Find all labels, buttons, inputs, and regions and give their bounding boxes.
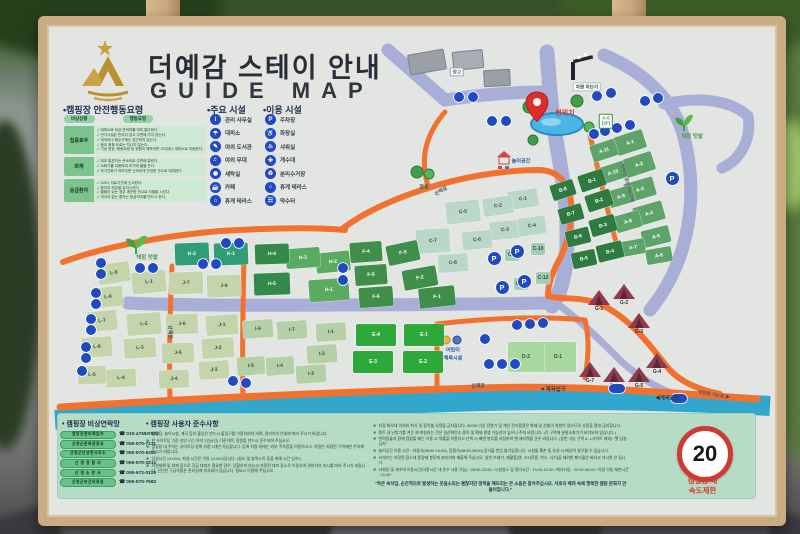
map-label: 산책로: [167, 325, 174, 339]
site-E-2: E-2: [403, 351, 443, 373]
rule-item: ✱캠핑장, 놀이시설, 계곡 등의 출입은 반드시 출입구를 이용하여야 하며,…: [146, 431, 368, 436]
contact-phone: ☎ 055-970-7582: [119, 480, 156, 485]
facility-marker: [221, 238, 231, 248]
facility-marker: [81, 353, 91, 363]
site-B-2: B-2: [584, 188, 614, 212]
contact-name-pill: 산청군보건의료원: [60, 478, 116, 487]
site-B-4: B-4: [595, 240, 624, 263]
site-I-6: I-6: [242, 319, 273, 339]
contact-name-pill: 캠핑장관리책임자: [60, 431, 116, 440]
rule-text: 반려동물과 함께 캠핑할 때는 이용 시 목줄을 착용하고 산책 시 배변 봉투…: [379, 436, 629, 446]
rule-text: 텐트 내 난방기를 켜둔 채 취침하는 것은 일산화탄소 중독 및 화재 발생 …: [379, 430, 617, 435]
site-C-8: C-8: [437, 253, 468, 273]
site-J-8: J-8: [207, 274, 242, 297]
map-label: 체험 텃밭: [681, 132, 703, 140]
facility-marker: [135, 263, 145, 273]
rule-text: 쓰레기는 지정된 장소에 종량제 봉투에 분리하여 배출해 주십시오. 일반 쓰…: [379, 455, 629, 465]
glamping-tent-G-2: G-2: [611, 284, 637, 306]
facility-marker: [241, 378, 251, 388]
site-A-6: A-6: [645, 245, 673, 264]
tent-icon: [579, 362, 601, 377]
site-H-3: H-3: [285, 247, 320, 269]
site-H-5: H-5: [254, 272, 291, 295]
photo-scene: 더예감 스테이 안내 GUIDE MAP •캠핑장 안전행동요령 비상상황 행동…: [0, 0, 800, 534]
rule-text: 샤워장 및 개수대 이용시간(이용시간 내 온수 사용 가능) : 08:00-…: [379, 467, 629, 477]
facility-marker: [501, 116, 511, 126]
glamping-tent-G-3: G-3: [626, 313, 652, 335]
site-I-2: I-2: [306, 344, 337, 364]
site-F-4: F-4: [349, 241, 382, 263]
site-A-8: A-8: [613, 209, 643, 233]
facility-marker: [468, 92, 478, 102]
speed-limit-sign: 20: [677, 426, 733, 482]
site-C-6: C-6: [461, 229, 493, 250]
site-J-1: J-1: [205, 314, 238, 336]
facility-marker: [606, 88, 616, 98]
site-B-3: B-3: [588, 213, 618, 237]
map-box-label: 창고: [450, 67, 464, 76]
map-label: 어린이: [446, 347, 460, 354]
facility-marker: [512, 320, 522, 330]
site-I-3: I-3: [295, 364, 326, 384]
parking-marker: P: [511, 245, 524, 258]
quiet-notice: “작은 속삭임, 순간적으로 발생하는 웃음소리는 괜찮지만 정적을 깨뜨리는 …: [373, 481, 628, 492]
rule-bullet: ✱: [146, 463, 150, 473]
contact-name-pill: 산 청 경 찰 서: [60, 459, 116, 468]
rule-item: ✱캠핑장 내 주차는 사이트당 등록 차량 1대만 가능합니다. 등록 차량 외…: [146, 444, 368, 454]
speed-caption-line2: 속도제한: [662, 485, 743, 496]
site-rules-list: ✱지정 화로대 이외의 취사 및 장작불 사용을 금지합니다. 600W 이상 …: [373, 423, 629, 478]
facility-marker: [640, 96, 650, 106]
rule-bullet: ✱: [373, 423, 377, 428]
rule-item: ✱한 사이트당 기준 성인 2인, 아이 2인(4인) 기준이며, 정원을 반드…: [146, 438, 368, 443]
facility-marker: [589, 129, 599, 139]
facility-marker: [81, 342, 91, 352]
map-label: 산책로: [433, 185, 448, 198]
site-E-4: E-4: [356, 324, 396, 346]
tent-icon: [646, 353, 668, 368]
contact-row: 산청군보건의료원☎ 055-970-7582: [60, 478, 185, 488]
rule-item: ✱입실시간 14:00시, 퇴실 시간은 익일 12:00시입니다. (청소 및…: [146, 456, 368, 461]
tent-icon: [628, 313, 650, 328]
rule-bullet: ✱: [373, 448, 377, 453]
glamping-tent-G-5: G-5: [626, 367, 652, 389]
rule-item: ✱텐트 내 난방기를 켜둔 채 취침하는 것은 일산화탄소 중독 및 화재 발생…: [373, 430, 629, 435]
facility-marker: [77, 366, 87, 376]
tent-label: G-5: [626, 383, 652, 389]
site-F-6: F-6: [358, 286, 393, 308]
parking-marker: P: [496, 281, 509, 294]
rule-text: 지정 화로대 이외의 취사 및 장작불 사용을 금지합니다. 600W 이상 전…: [379, 423, 622, 428]
site-I-5: I-5: [236, 356, 265, 376]
map-label: ▼계곡입구: [540, 385, 566, 393]
site-B-1: B-1: [577, 168, 607, 192]
facility-marker: [497, 359, 507, 369]
parking-marker: P: [518, 275, 531, 288]
contact-name-pill: 산 청 소 방 서: [60, 469, 116, 478]
map-label: 산책로: [471, 383, 485, 390]
map-label: 놀이공간: [512, 158, 530, 165]
facility-marker: [96, 269, 106, 279]
site-I-4: I-4: [265, 356, 294, 376]
user-rules-header: • 캠핑장 사용자 준수사항: [146, 419, 219, 429]
rule-item: ✱샤워장 및 개수대 이용시간(이용시간 내 온수 사용 가능) : 08:00…: [373, 467, 629, 477]
facility-marker: [592, 91, 602, 101]
facility-marker: [234, 238, 244, 248]
facility-marker: [454, 92, 464, 102]
rule-bullet: ✱: [373, 436, 377, 446]
facility-marker: [91, 288, 101, 298]
site-L-4: L-4: [106, 368, 137, 387]
rule-text: 캠핑장, 놀이시설, 계곡 등의 출입은 반드시 출입구를 이용하여야 하며, …: [152, 431, 328, 436]
site-C-3: C-3: [489, 219, 521, 240]
site-I-1: I-1: [315, 322, 346, 342]
tent-icon: [628, 367, 650, 382]
site-L-3: L-3: [123, 337, 156, 359]
contacts-header: • 캠핑장 비상연락망: [62, 419, 120, 429]
rule-bullet: ✱: [146, 438, 150, 443]
site-B-5: B-5: [571, 249, 598, 270]
facility-marker: [96, 258, 106, 268]
site-J-2: J-2: [201, 337, 234, 359]
site-C-12: C-12: [536, 272, 550, 284]
map-label: 정원: [419, 184, 428, 191]
facility-marker: [538, 318, 548, 328]
facility-marker: [480, 334, 490, 344]
rule-item: ✱지정 화로대 이외의 취사 및 장작불 사용을 금지합니다. 600W 이상 …: [373, 423, 629, 428]
site-J-3: J-3: [198, 360, 229, 380]
facility-marker: [338, 275, 348, 285]
facility-marker: [625, 120, 635, 130]
rule-bullet: ✱: [373, 430, 377, 435]
site-C-4: C-4: [517, 215, 547, 237]
site-B-6: B-6: [564, 226, 591, 247]
tent-label: G-7: [577, 378, 603, 384]
site-A-11: A-11: [589, 138, 619, 162]
facility-marker: [148, 263, 158, 273]
facility-marker: [609, 384, 625, 393]
rule-bullet: ✱: [373, 455, 377, 465]
map-label: 현위치: [555, 108, 574, 118]
facility-marker: [338, 263, 348, 273]
rule-bullet: ✱: [146, 456, 150, 461]
facility-marker: [653, 93, 663, 103]
facility-marker: [228, 376, 238, 386]
parking-marker: P: [666, 172, 679, 185]
glamping-tent-G-7: G-7: [577, 362, 603, 384]
site-L-1: L-1: [131, 269, 167, 294]
tent-label: G-3: [626, 329, 652, 335]
site-F-3: F-3: [385, 240, 420, 266]
rule-bullet: ✱: [373, 467, 377, 477]
rule-item: ✱쓰레기는 지정된 장소에 종량제 봉투에 분리하여 배출해 주십시오. 일반 …: [373, 455, 629, 465]
contact-name-pill: 산청군문화관광과: [60, 440, 116, 449]
rule-text: 캠핑장 내 주차는 사이트당 등록 차량 1대만 가능합니다. 등록 차량 외에…: [152, 444, 368, 454]
site-C-7: C-7: [415, 228, 451, 254]
site-C-2: C-2: [482, 195, 514, 217]
map-label: ◀계곡입구: [655, 395, 678, 402]
site-E-3: E-3: [353, 351, 393, 373]
site-C-5: C-5: [445, 199, 481, 224]
facility-marker: [86, 325, 96, 335]
tent-label: G-1: [586, 306, 612, 312]
rule-item: ✱자연재해 및 화재 등으로 긴급 대피가 필요한 경우, 당황하지 마시고 지…: [146, 463, 368, 473]
site-J-4: J-4: [159, 369, 190, 388]
rule-text: 놀이공간 이용 시간 : 하절기(08:00-19:00), 동절기(08:00…: [379, 448, 610, 453]
site-A-5: A-5: [640, 224, 671, 247]
parking-marker: P: [488, 252, 501, 265]
facility-marker: [525, 319, 535, 329]
facility-marker: [198, 259, 208, 269]
glamping-tent-G-1: G-1: [586, 290, 612, 312]
map-box-label: 차량 차단기: [573, 82, 601, 91]
map-label: 체육시설: [444, 355, 462, 362]
facility-marker: [91, 299, 101, 309]
map-box-label: A-5 [2F]: [599, 114, 613, 129]
site-J-7: J-7: [169, 271, 204, 294]
rule-text: 입실시간 14:00시, 퇴실 시간은 익일 12:00시입니다. (청소 및 …: [152, 456, 301, 461]
contact-name-pill: 산청군단성면사무소: [60, 450, 116, 459]
site-B-7: B-7: [557, 203, 584, 225]
site-I-7: I-7: [276, 320, 307, 340]
rule-item: ✱놀이공간 이용 시간 : 하절기(08:00-19:00), 동절기(08:0…: [373, 448, 629, 453]
tent-label: G-2: [611, 300, 637, 306]
site-D-1: D-1: [540, 342, 576, 372]
rule-text: 자연재해 및 화재 등으로 긴급 대피가 필요한 경우, 당황하지 마시고 지정…: [152, 463, 368, 473]
site-C-10: C-10: [531, 243, 545, 255]
facility-marker: [510, 359, 520, 369]
site-L-2: L-2: [126, 312, 161, 336]
facility-marker: [612, 123, 622, 133]
rule-text: 한 사이트당 기준 성인 2인, 아이 2인(4인) 기준이며, 정원을 반드시…: [152, 438, 291, 443]
rule-item: ✱반려동물과 함께 캠핑할 때는 이용 시 목줄을 착용하고 산책 시 배변 봉…: [373, 436, 629, 446]
facility-marker: [484, 359, 494, 369]
facility-marker: [487, 116, 497, 126]
site-H-4: H-4: [255, 243, 290, 264]
site-E-1: E-1: [404, 324, 444, 346]
site-J-5: J-5: [162, 342, 195, 363]
site-F-5: F-5: [354, 264, 387, 286]
map-label: 신안면 가는길 ▶: [698, 389, 730, 400]
tent-icon: [603, 367, 625, 382]
rule-bullet: ✱: [146, 431, 150, 436]
site-F-1: F-1: [418, 285, 456, 309]
map-label: 체험 텃밭: [136, 253, 158, 261]
rule-bullet: ✱: [146, 444, 150, 454]
site-B-8: B-8: [549, 179, 577, 202]
facility-marker: [211, 259, 221, 269]
user-rules-list: ✱캠핑장, 놀이시설, 계곡 등의 출입은 반드시 출입구를 이용하여야 하며,…: [146, 431, 368, 475]
tent-icon: [588, 290, 610, 305]
facility-marker: [86, 314, 96, 324]
tent-icon: [613, 284, 635, 299]
